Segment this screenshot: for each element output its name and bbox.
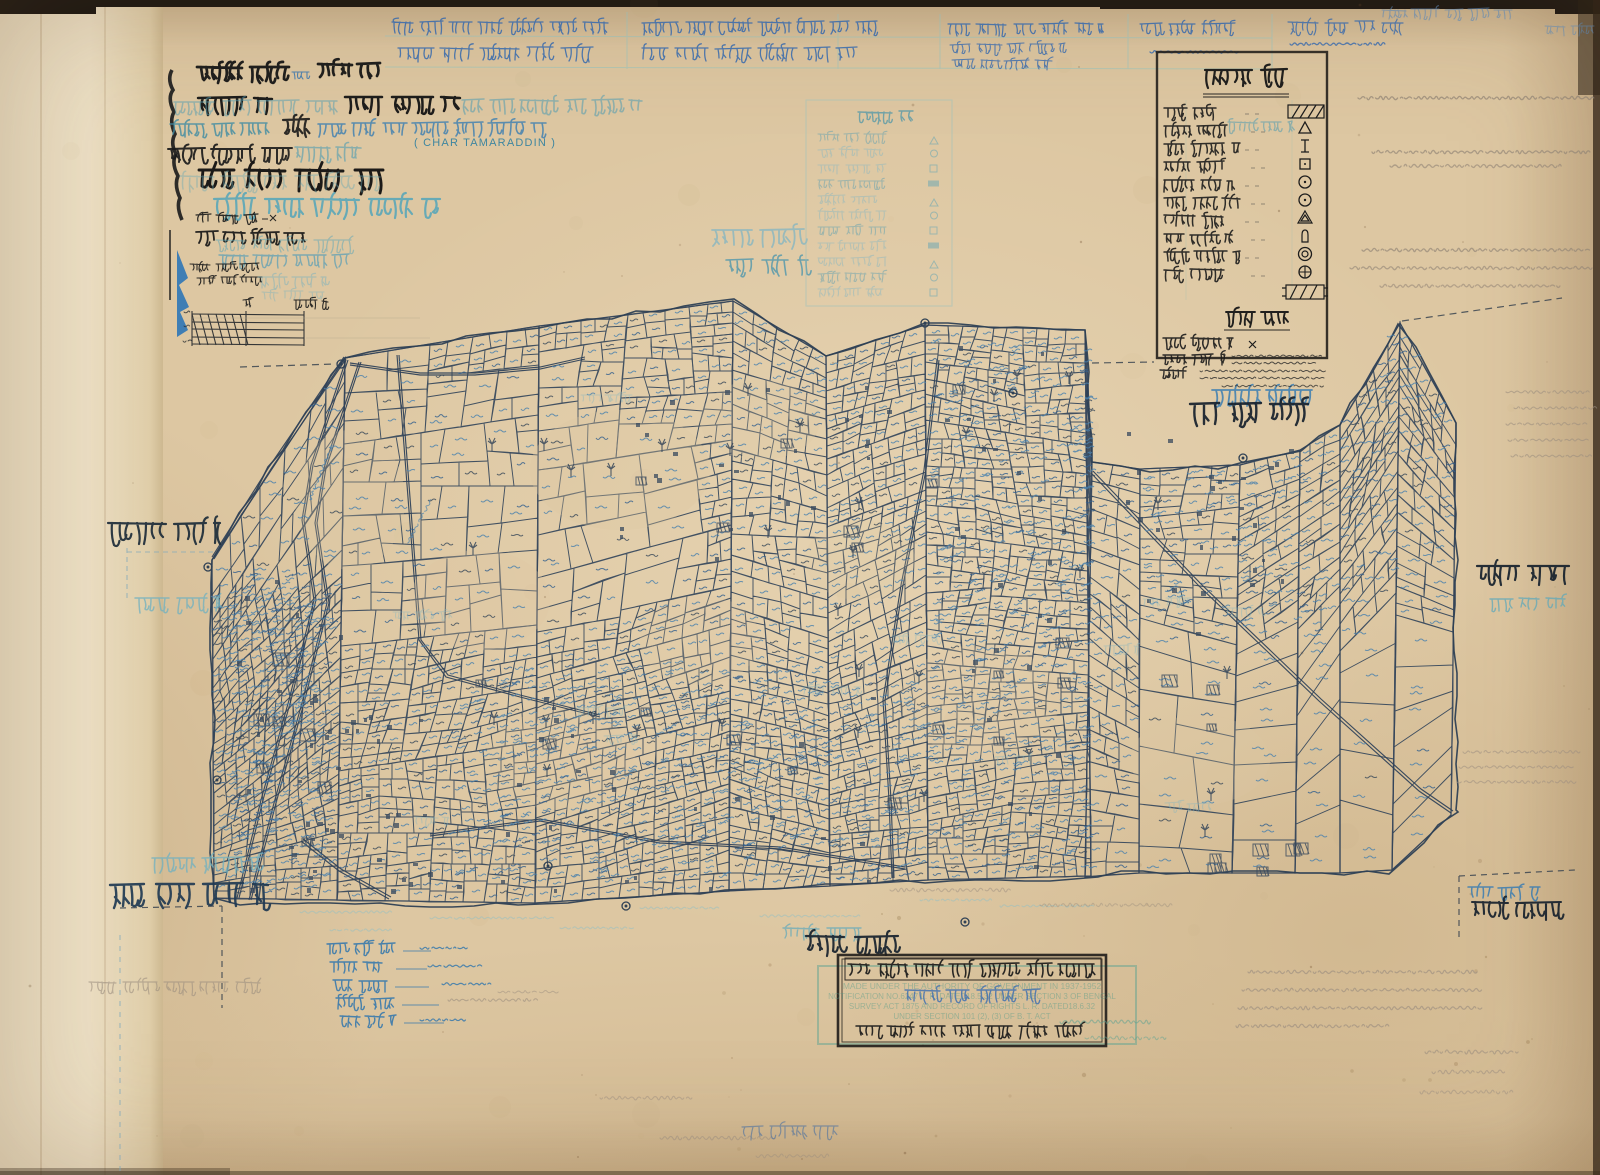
svg-text:SURVEY ACT 1875 AND RECORD OF: SURVEY ACT 1875 AND RECORD OF RIGHTS L. …: [849, 1002, 1096, 1011]
svg-text:UNDER SECTION 101 (2), (3) OF: UNDER SECTION 101 (2), (3) OF B. T. ACT: [893, 1012, 1050, 1021]
svg-text:NOTIFICATION NO.6247 L. R. DAT: NOTIFICATION NO.6247 L. R. DATED18.5.32 …: [828, 992, 1116, 1001]
svg-text:MADE UNDER THE AUTHORITY OF GO: MADE UNDER THE AUTHORITY OF GOVERNMENT I…: [843, 981, 1102, 991]
svg-text:( CHAR TAMARADDIN ): ( CHAR TAMARADDIN ): [414, 137, 556, 149]
